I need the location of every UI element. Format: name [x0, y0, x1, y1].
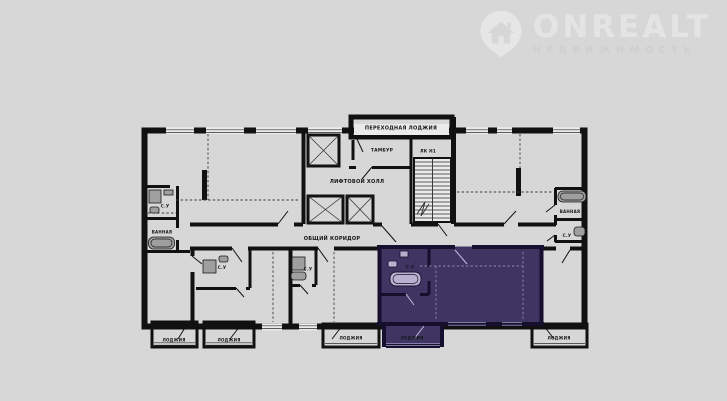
room-label-loggia: ЛОДЖИЯ [547, 336, 570, 341]
room-label-bathroom: ВАННАЯ [560, 209, 581, 214]
room-label-common-corridor: ОБЩИЙ КОРИДОР [304, 234, 361, 242]
room-label-loggia: ЛОДЖИЯ [339, 336, 362, 341]
room-label-wc: С.У [406, 265, 415, 270]
room-label-tambour: ТАМБУР [371, 148, 394, 154]
room-label-staircase: ЛК Н1 [420, 149, 436, 154]
room-label-transition-loggia: ПЕРЕХОДНАЯ ЛОДЖИЯ [365, 126, 437, 132]
staircase [414, 158, 451, 222]
page: ONREALT НЕДВИЖИМОСТЬ [0, 0, 727, 401]
room-label-wc: С.У [304, 267, 313, 272]
room-label-loggia: ЛОДЖИЯ [217, 338, 240, 343]
floor-plan: С.У ЛОДЖИЯ ПЕРЕХОДНАЯ ЛОДЖИЯ ТАМБУР ЛК Н… [0, 0, 727, 401]
room-label-loggia: ЛОДЖИЯ [162, 338, 185, 343]
room-label-wc: С.У [218, 265, 227, 270]
room-label-bathroom: ВАННАЯ [152, 230, 173, 235]
wall-stub [202, 170, 207, 200]
room-label-wc: С.У [161, 204, 170, 209]
room-label-elevator-hall: ЛИФТОВОЙ ХОЛЛ [330, 177, 385, 185]
room-label-loggia: ЛОДЖИЯ [400, 336, 423, 341]
tambour-walls [349, 140, 411, 168]
room-label-wc: С.У [563, 233, 572, 238]
apartment-highlighted[interactable]: С.У ЛОДЖИЯ [377, 247, 544, 348]
